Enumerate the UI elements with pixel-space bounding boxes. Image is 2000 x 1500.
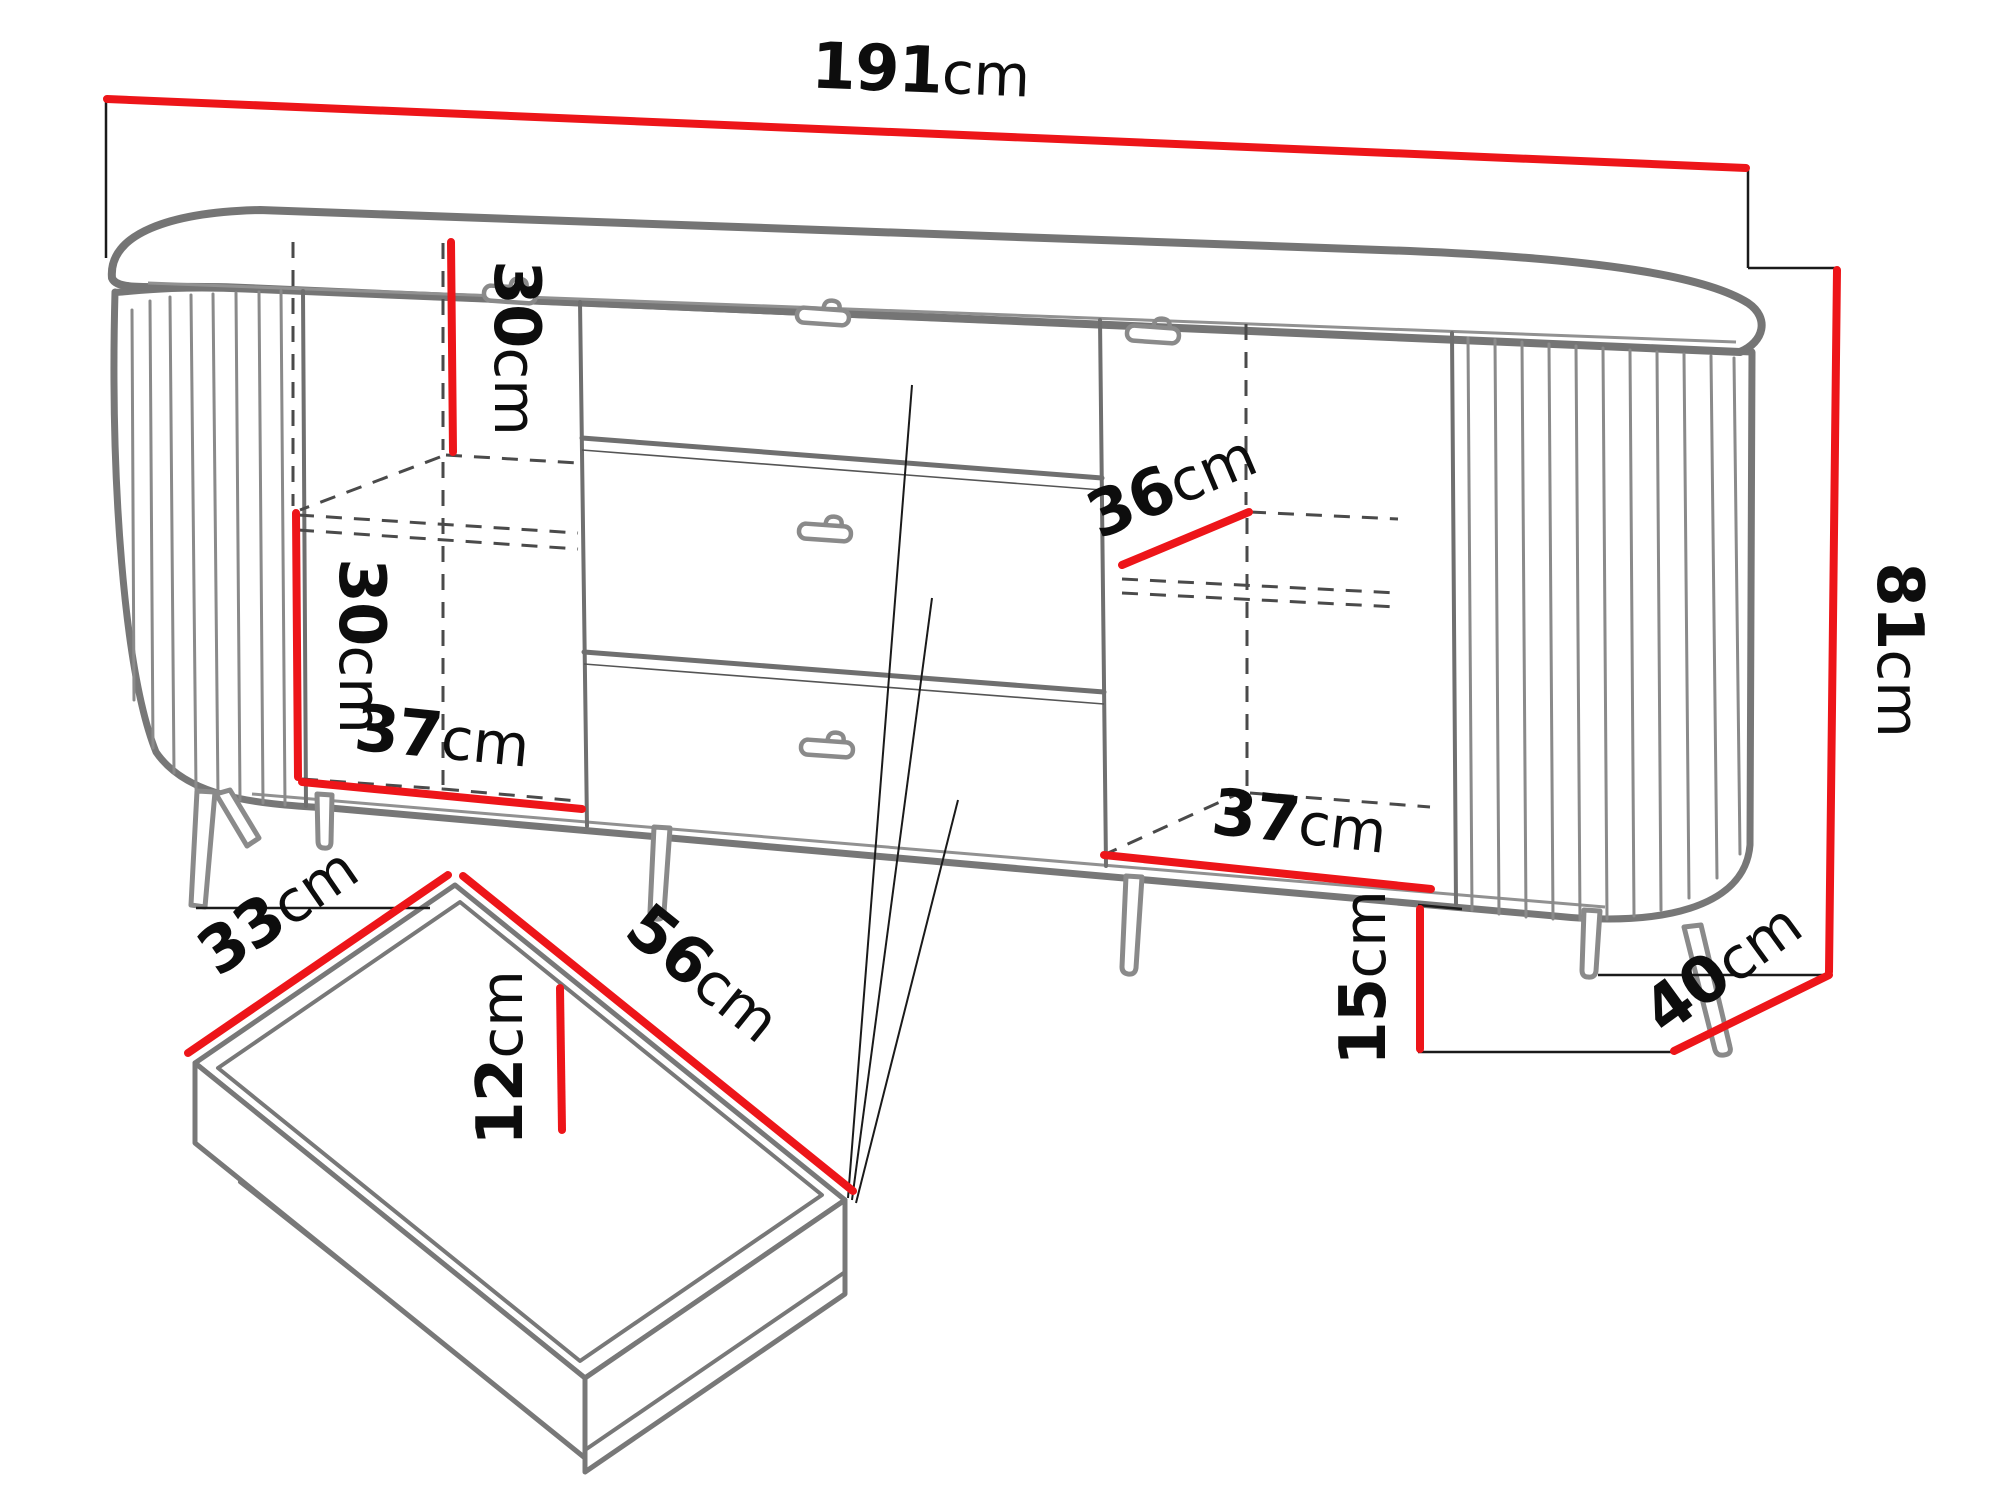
dimension-diagram: 191cm 81cm 40cm 15cm 30cm 30cm 37cm 36cm… (0, 0, 2000, 1500)
label-left-upper-compartment: 30cm (479, 260, 553, 435)
dim-line-total-width (107, 99, 1746, 168)
leg-back-right (1582, 910, 1600, 977)
leg-center-right (1122, 876, 1142, 974)
dim-line-left-lower (296, 513, 298, 777)
label-total-width: 191cm (810, 29, 1032, 112)
leg-front-left (191, 791, 215, 907)
dim-line-drawer-height (560, 988, 562, 1130)
dim-line-left-upper (451, 242, 453, 452)
label-leg-height: 15cm (1327, 890, 1401, 1065)
label-drawer-inner-height: 12cm (464, 970, 538, 1145)
dim-line-total-height (1829, 270, 1837, 972)
label-total-height: 81cm (1862, 562, 1936, 737)
